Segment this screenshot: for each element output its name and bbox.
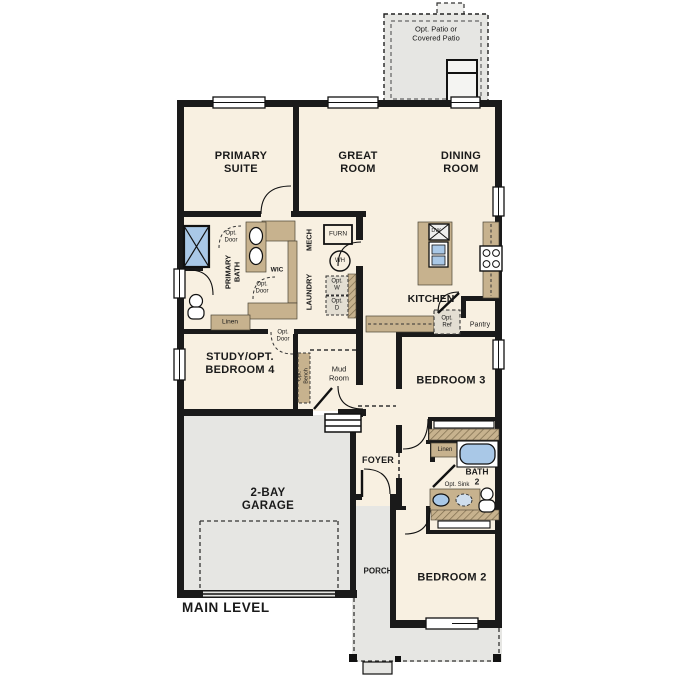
primary-bath-label: PRIMARYBATH <box>225 255 242 289</box>
linen-bath2-label: Linen <box>438 447 453 454</box>
mech-label: MECH <box>305 229 314 251</box>
opt-dryer-label: Opt.D <box>331 299 342 312</box>
opt-ref-label: Opt.Ref <box>441 316 452 329</box>
shower <box>184 226 209 267</box>
bedroom2-label: BEDROOM 2 <box>417 572 486 585</box>
dining-room-label: DININGROOM <box>441 150 481 176</box>
wic-label: WIC <box>271 267 284 274</box>
garage-label: 2-BAYGARAGE <box>242 487 294 513</box>
porch-label: PORCH <box>364 567 393 576</box>
bedroom3-label: BEDROOM 3 <box>416 375 485 388</box>
pantry-label: Pantry <box>470 322 490 329</box>
study-label: STUDY/OPT.BEDROOM 4 <box>205 351 274 377</box>
water-heater-label: WH <box>335 258 345 265</box>
furnace-label: FURN <box>329 230 347 238</box>
kitchen-label: KITCHEN <box>408 293 455 305</box>
patio-label: Opt. Patio orCovered Patio <box>412 26 460 43</box>
opt-sink-label: Opt. Sink <box>445 482 470 489</box>
linen-primary-label: Linen <box>222 318 238 326</box>
opt-bench-label: Opt.Bench <box>297 368 310 384</box>
primary-suite-label: PRIMARYSUITE <box>215 150 267 176</box>
mudroom-steps <box>325 414 361 432</box>
foyer-label: FOYER <box>362 455 394 465</box>
floor-plan-drawing <box>0 0 687 687</box>
mud-room-label: MudRoom <box>329 366 349 383</box>
opt-door-bath-label: Opt.Door <box>224 231 237 244</box>
patio-area <box>384 3 488 101</box>
range <box>480 246 502 271</box>
opt-door-study-label: Opt.Door <box>276 330 289 343</box>
laundry-label: LAUNDRY <box>305 274 314 310</box>
great-room-label: GREATROOM <box>338 150 377 176</box>
opt-door-wic-label: Opt.Door <box>255 282 268 295</box>
main-level-title: MAIN LEVEL <box>182 600 270 615</box>
floor-plan: Opt. Patio orCovered Patio PRIMARYSUITE … <box>0 0 687 687</box>
bath2-tub <box>457 441 498 467</box>
dishwasher-label: DW <box>431 228 440 234</box>
opt-washer-label: Opt.W <box>331 279 342 292</box>
